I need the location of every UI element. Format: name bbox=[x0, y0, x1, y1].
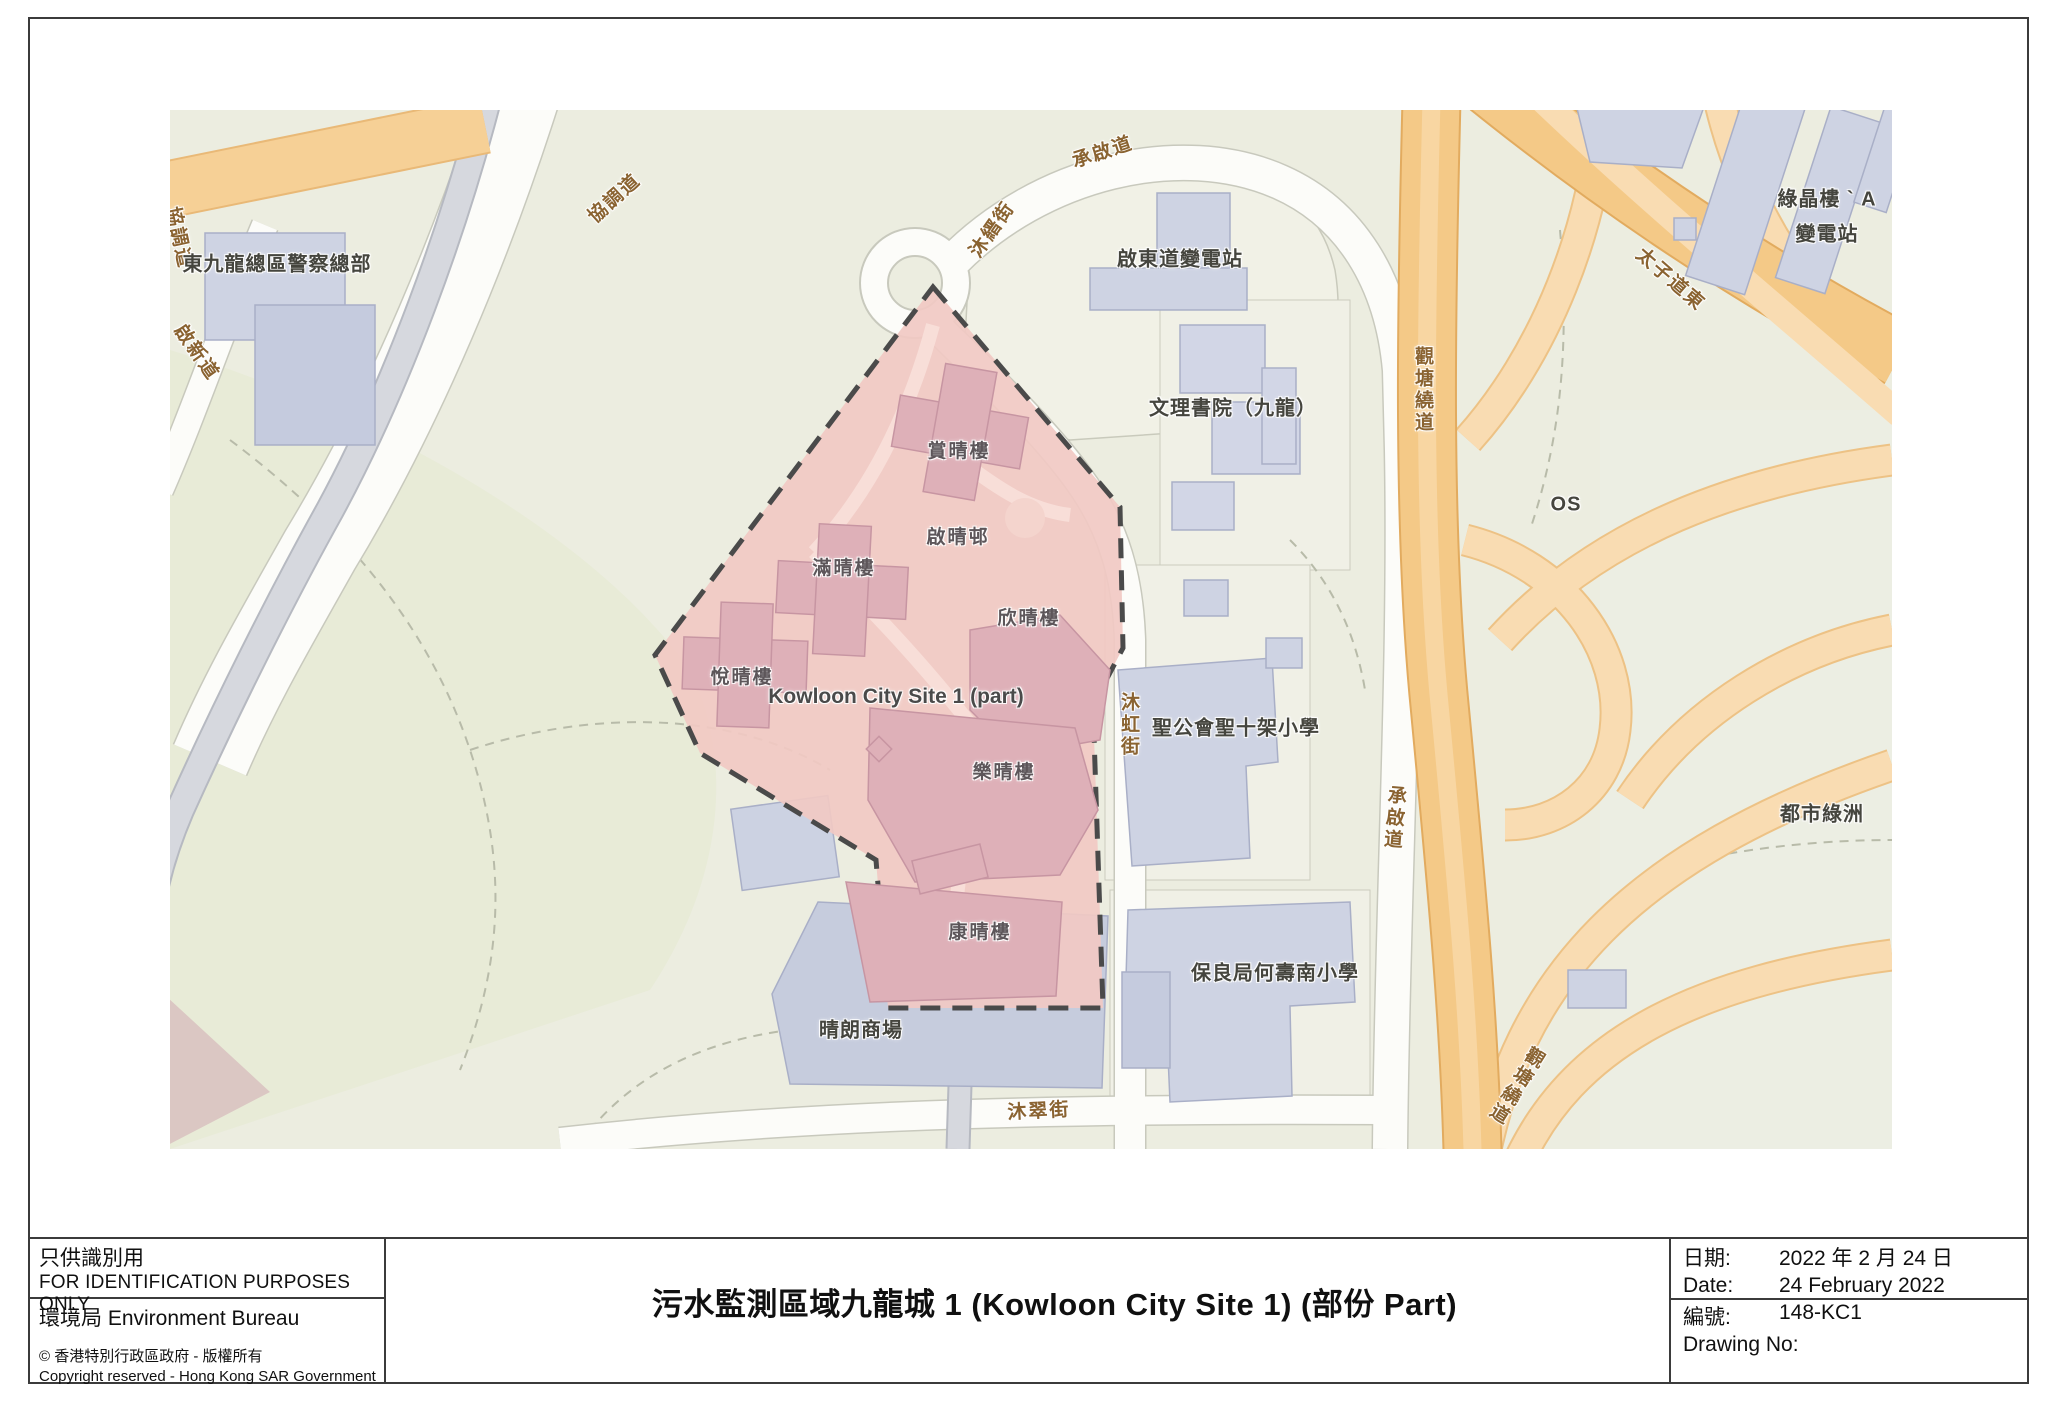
place-label-greenery-crest: 綠晶樓 ` A bbox=[1777, 190, 1876, 211]
date-cell: 日期: 2022 年 2 月 24 日 Date: 24 February 20… bbox=[1671, 1239, 2027, 1300]
drawing-no-value: 148-KC1 bbox=[1779, 1301, 1862, 1331]
title-block-right: 日期: 2022 年 2 月 24 日 Date: 24 February 20… bbox=[1669, 1239, 2027, 1382]
site-building-label-mun-ching: 滿晴樓 bbox=[812, 559, 875, 579]
bureau-name: 環境局 Environment Bureau bbox=[39, 1302, 375, 1332]
place-label-metro-oasis: 都市綠洲 bbox=[1780, 805, 1864, 826]
drawing-no-label-en: Drawing No: bbox=[1683, 1333, 1799, 1357]
place-label-os: OS bbox=[1551, 495, 1582, 516]
site-name-label: Kowloon City Site 1 (part) bbox=[768, 686, 1024, 708]
drawing-page: 協調道 協調道 啟新道 承啟道 沐縉街 沐虹街 承啟道 沐翠街 太子道東 觀塘繞… bbox=[0, 0, 2056, 1421]
map-canvas: 協調道 協調道 啟新道 承啟道 沐縉街 沐虹街 承啟道 沐翠街 太子道東 觀塘繞… bbox=[170, 110, 1892, 1149]
date-label-zh: 日期: bbox=[1683, 1242, 1779, 1272]
copyright-note: © 香港特別行政區政府 - 版權所有 Copyright reserved - … bbox=[39, 1347, 376, 1388]
bureau-cell: 環境局 Environment Bureau © 香港特別行政區政府 - 版權所… bbox=[30, 1299, 384, 1390]
street-label-muk-chui: 沐翠街 bbox=[1007, 1100, 1071, 1123]
drawing-no-cell: 編號: 148-KC1 Drawing No: bbox=[1671, 1300, 2027, 1358]
title-block: 只供識別用 FOR IDENTIFICATION PURPOSES ONLY 環… bbox=[30, 1237, 2027, 1382]
street-label-kwun-tong-bypass-n: 觀塘繞道 bbox=[1412, 346, 1432, 434]
street-label-muk-hung: 沐虹街 bbox=[1118, 692, 1138, 758]
site-building-label-lok-ching: 樂晴樓 bbox=[972, 763, 1035, 783]
copyright-en: Copyright reserved - Hong Kong SAR Gover… bbox=[39, 1367, 376, 1387]
place-label-ching-long-mall: 晴朗商場 bbox=[819, 1021, 903, 1042]
drawing-no-row-zh: 編號: 148-KC1 bbox=[1671, 1300, 2027, 1332]
title-cell: 污水監測區域九龍城 1 (Kowloon City Site 1) (部份 Pa… bbox=[386, 1239, 1667, 1382]
date-row-en: Date: 24 February 2022 bbox=[1671, 1273, 2027, 1299]
page-border: 協調道 協調道 啟新道 承啟道 沐縉街 沐虹街 承啟道 沐翠街 太子道東 觀塘繞… bbox=[28, 17, 2029, 1384]
place-label-police-hq: 東九龍總區警察總部 bbox=[183, 255, 372, 276]
drawing-title: 污水監測區域九龍城 1 (Kowloon City Site 1) (部份 Pa… bbox=[442, 1279, 1667, 1324]
street-label-shing-kai-s: 承啟道 bbox=[1380, 784, 1406, 851]
place-label-skh-school: 聖公會聖十架小學 bbox=[1152, 719, 1320, 740]
date-value-en: 24 February 2022 bbox=[1779, 1274, 1945, 1298]
site-circle-feature bbox=[1005, 498, 1045, 538]
date-row-zh: 日期: 2022 年 2 月 24 日 bbox=[1671, 1241, 2027, 1273]
place-label-plk-school: 保良局何壽南小學 bbox=[1191, 964, 1359, 985]
site-building-label-hong-ching: 康晴樓 bbox=[948, 923, 1011, 943]
site-estate-label-kai-ching: 啟晴邨 bbox=[926, 528, 989, 548]
place-label-cognitio-college: 文理書院（九龍） bbox=[1149, 399, 1317, 420]
copyright-zh: © 香港特別行政區政府 - 版權所有 bbox=[39, 1347, 376, 1367]
place-label-greenery-substation: 變電站 bbox=[1796, 225, 1859, 246]
date-value-zh: 2022 年 2 月 24 日 bbox=[1779, 1242, 1953, 1272]
title-block-left: 只供識別用 FOR IDENTIFICATION PURPOSES ONLY 環… bbox=[30, 1239, 386, 1382]
map-graphics bbox=[170, 110, 1892, 1149]
identification-note-zh: 只供識別用 bbox=[39, 1242, 375, 1272]
site-building-label-sheung-ching: 賞晴樓 bbox=[927, 442, 990, 462]
site-building-label-yan-ching: 欣晴樓 bbox=[997, 609, 1060, 629]
place-label-substation: 啟東道變電站 bbox=[1117, 250, 1243, 271]
site-building-label-yuet-ching: 悅晴樓 bbox=[710, 668, 773, 688]
date-label-en: Date: bbox=[1683, 1274, 1779, 1298]
identification-note: 只供識別用 FOR IDENTIFICATION PURPOSES ONLY bbox=[30, 1239, 384, 1299]
drawing-no-row-en: Drawing No: bbox=[1671, 1332, 2027, 1358]
drawing-no-label-zh: 編號: bbox=[1683, 1301, 1779, 1331]
gray-stub bbox=[958, 1085, 960, 1149]
